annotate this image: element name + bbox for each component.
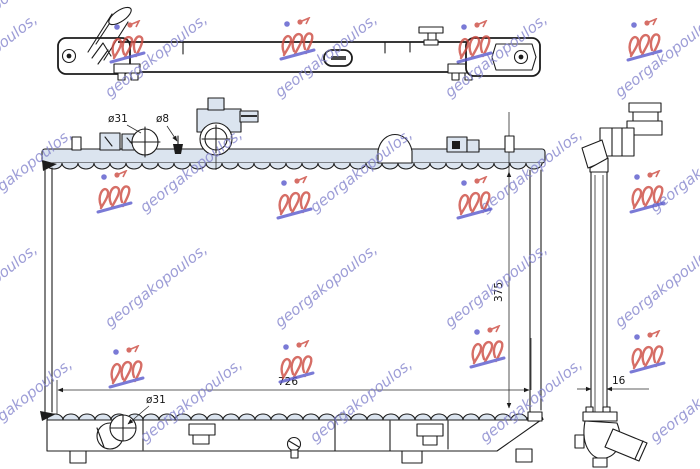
side-core (591, 172, 607, 414)
mounting-foot (70, 451, 86, 463)
watermark-text: georgakopoulos, (646, 355, 700, 446)
watermark-text: georgakopoulos, (476, 125, 585, 216)
hose-outlet-side-view (575, 407, 647, 467)
brand-logo-icon (628, 19, 661, 60)
brand-logo-icon (281, 18, 314, 59)
watermark-text: georgakopoulos, (0, 240, 41, 331)
watermark-text: georgakopoulos, (101, 240, 210, 331)
dim-overflow-fitting: ø8 (156, 113, 177, 141)
filler-neck-side-view (582, 103, 662, 172)
mounting-foot (402, 451, 422, 463)
brand-logo-icon (98, 171, 131, 212)
dim-top-inlet: ø31 (108, 113, 141, 133)
dim-label-bottom-outlet: ø31 (146, 394, 166, 406)
mid-bracket (447, 137, 479, 152)
mounting-foot (516, 449, 532, 462)
dim-thickness-16: 16 (577, 375, 649, 389)
watermark-text: georgakopoulos, (611, 10, 700, 101)
watermark-text: georgakopoulos, (441, 240, 550, 331)
brand-logo-icon (471, 326, 504, 367)
mounting-hole-center (67, 54, 72, 59)
bottom-tank-step (528, 412, 542, 421)
watermark-text: georgakopoulos, (271, 240, 380, 331)
top-tank-scallop-edge (46, 163, 542, 169)
watermark-text: georgakopoulos, (0, 10, 41, 101)
dim-label-top-inlet: ø31 (108, 113, 128, 125)
drain-plug (288, 438, 301, 459)
dim-label-overflow: ø8 (156, 113, 169, 125)
brand-logo-icon (631, 331, 664, 372)
side-view (575, 103, 662, 467)
watermark-text: georgakopoulos, (0, 125, 76, 216)
dim-label-thickness: 16 (612, 375, 626, 387)
drawing-canvas: 726 375 ø31 ø8 ø31 16 georgakopoulos, ge… (0, 0, 700, 469)
watermark-text: georgakopoulos, (306, 125, 415, 216)
radiator-technical-drawing: 726 375 ø31 ø8 ø31 16 georgakopoulos, ge… (0, 0, 700, 469)
brand-logo-icon (278, 177, 311, 218)
watermark-text: georgakopoulos, (611, 240, 700, 331)
front-view (40, 98, 545, 463)
overflow-fitting (173, 136, 183, 154)
brand-logo-icon (110, 346, 143, 387)
